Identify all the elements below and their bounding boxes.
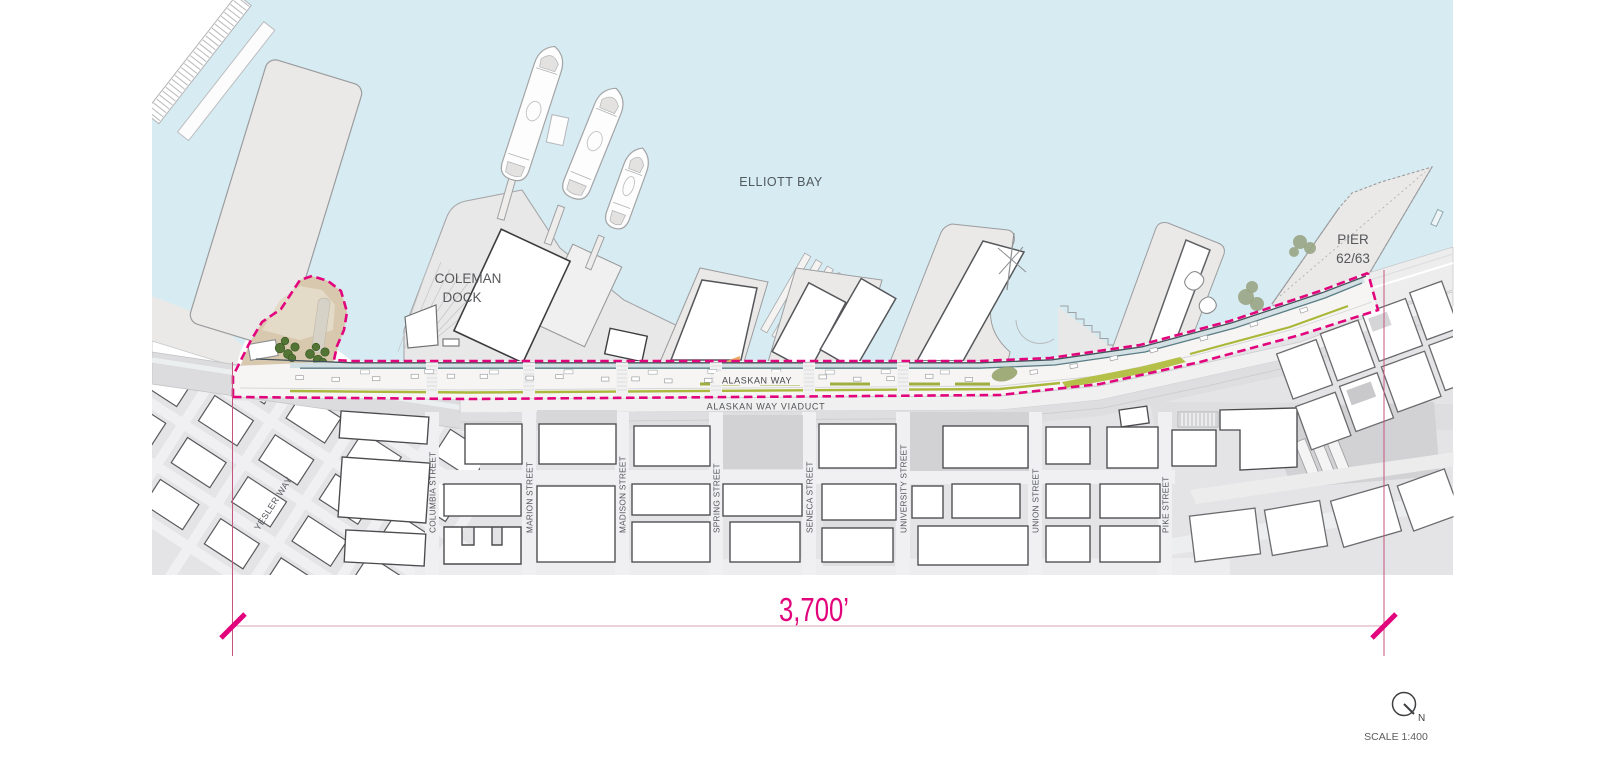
svg-text:UNIVERSITY STREET: UNIVERSITY STREET [900,444,909,533]
svg-text:MARION STREET: MARION STREET [526,462,535,533]
svg-text:COLUMBIA STREET: COLUMBIA STREET [429,452,438,533]
svg-text:SPRING STREET: SPRING STREET [713,463,722,533]
svg-text:ALASKAN WAY: ALASKAN WAY [722,376,792,386]
svg-text:DOCK: DOCK [442,290,481,305]
svg-text:SENECA STREET: SENECA STREET [806,461,815,533]
svg-text:N: N [1418,713,1425,724]
svg-text:MADISON STREET: MADISON STREET [619,456,628,533]
svg-text:SCALE 1:400: SCALE 1:400 [1364,731,1428,743]
svg-text:62/63: 62/63 [1336,251,1370,266]
svg-text:UNION STREET: UNION STREET [1032,468,1041,533]
svg-text:COLEMAN: COLEMAN [435,271,502,286]
svg-text:3,700’: 3,700’ [779,591,849,628]
svg-text:ELLIOTT BAY: ELLIOTT BAY [739,175,823,189]
svg-text:PIER: PIER [1337,232,1369,247]
svg-text:PIKE STREET: PIKE STREET [1162,476,1171,533]
svg-text:ALASKAN WAY VIADUCT: ALASKAN WAY VIADUCT [707,402,826,412]
